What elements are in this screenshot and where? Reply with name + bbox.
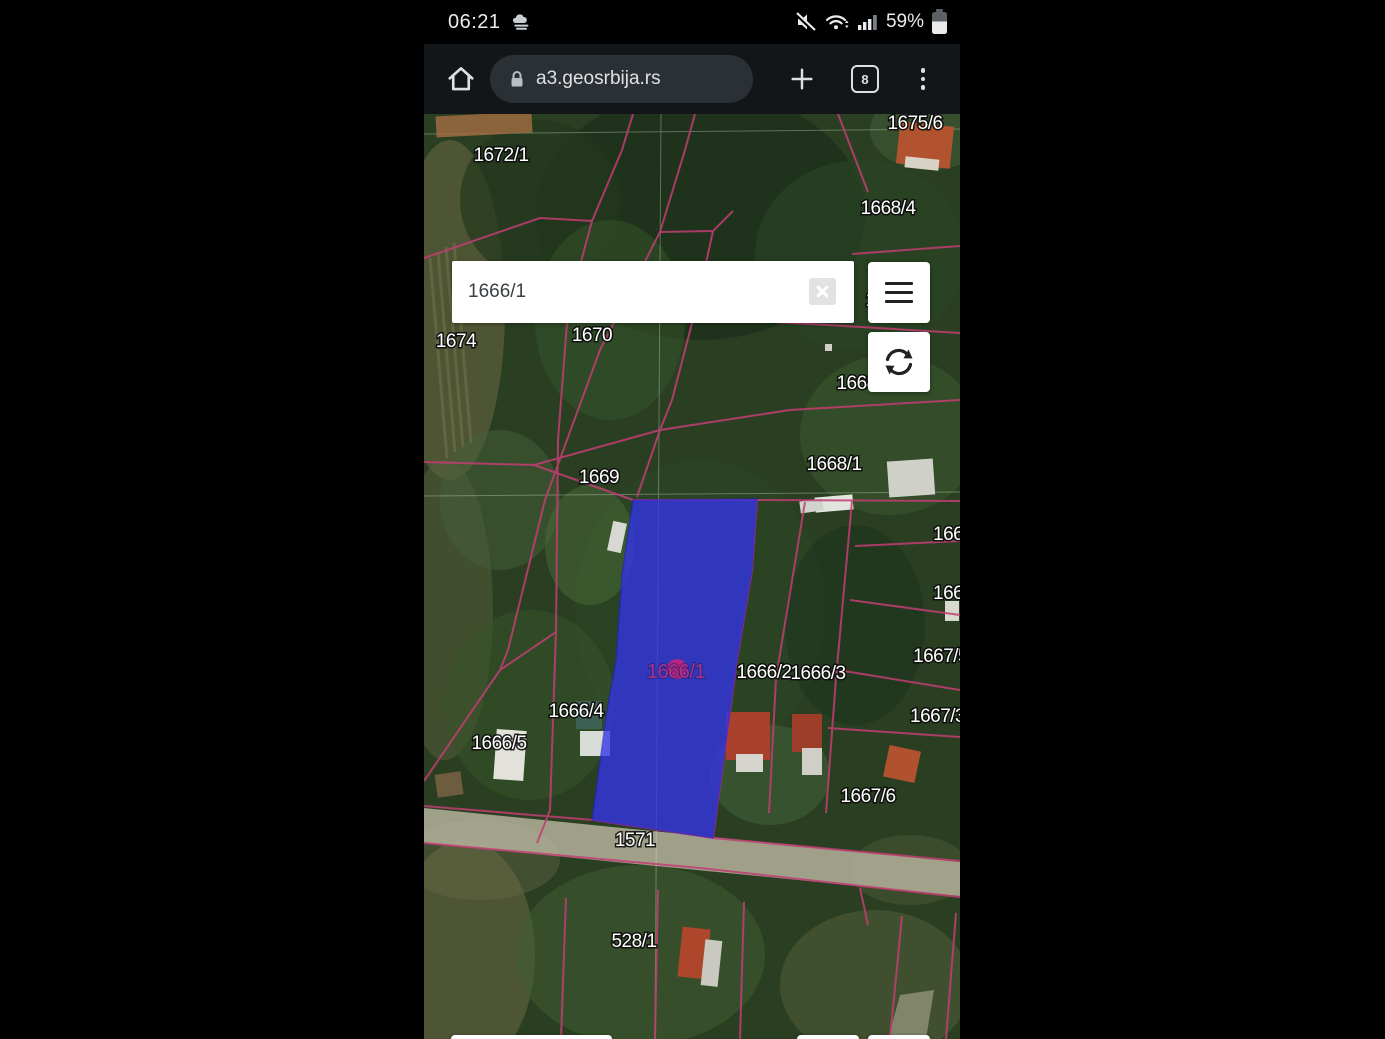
satellite-map[interactable]: 1675/61672/11668/41668/3167416701668/216…	[424, 114, 960, 1039]
clear-search-button[interactable]	[809, 278, 836, 305]
battery-percent: 59%	[886, 11, 924, 33]
phone-screen: 06:21	[424, 0, 960, 1039]
address-bar[interactable]: a3.geosrbija.rs	[490, 55, 753, 103]
signal-icon	[858, 13, 879, 31]
parcel-label-1667-5: 1667/5	[913, 646, 960, 667]
phone-screenshot: 06:21	[0, 0, 1385, 1039]
url-text: a3.geosrbija.rs	[536, 68, 661, 90]
parcel-label-1667: 1667	[933, 583, 960, 604]
parcel-label-1672-1: 1672/1	[473, 145, 528, 166]
parcel-label-1667: 1667	[933, 524, 960, 545]
search-value: 1666/1	[468, 281, 526, 303]
tab-switcher-button[interactable]: 8	[851, 65, 879, 93]
new-tab-button[interactable]	[785, 62, 819, 96]
parcel-label-1666-2: 1666/2	[736, 662, 791, 683]
parcel-label-1666-5: 1666/5	[471, 733, 526, 754]
parcel-label-1667-3: 1667/3	[910, 706, 960, 727]
tab-count: 8	[861, 72, 868, 87]
home-button[interactable]	[444, 62, 478, 96]
plus-icon	[788, 65, 816, 93]
hamburger-icon	[885, 282, 913, 286]
parcel-label-1670: 1670	[572, 325, 612, 346]
parcel-label-1571: 1571	[615, 830, 655, 851]
refresh-icon	[881, 344, 917, 380]
parcel-label-1667-6: 1667/6	[840, 786, 895, 807]
mute-icon	[794, 11, 818, 33]
locate-me-button[interactable]	[797, 1035, 859, 1039]
zoom-in-button[interactable]	[868, 1035, 930, 1039]
home-icon	[446, 64, 476, 94]
parcel-label-1669: 1669	[579, 467, 619, 488]
weather-notification-icon	[511, 13, 533, 31]
clock: 06:21	[448, 11, 501, 34]
parcel-label-528-1: 528/1	[611, 931, 656, 952]
katastar-layer-button[interactable]: KATASTAR	[451, 1035, 612, 1039]
status-icons: 59%	[794, 9, 948, 35]
parcel-label-1668-1: 1668/1	[806, 454, 861, 475]
status-bar: 06:21	[424, 0, 960, 44]
parcel-label-1675-6: 1675/6	[887, 114, 942, 134]
parcel-label-1668-4: 1668/4	[860, 198, 916, 219]
menu-button[interactable]	[868, 262, 930, 323]
browser-menu-button[interactable]	[913, 62, 933, 96]
parcel-label-1666-3: 1666/3	[790, 663, 845, 684]
parcel-label-1666-1: 1666/1	[647, 661, 706, 683]
wifi-icon	[825, 11, 851, 33]
parcel-search-input[interactable]: 1666/1	[452, 261, 854, 323]
battery-icon	[931, 9, 948, 35]
lock-icon	[508, 69, 526, 89]
parcel-label-1666-4: 1666/4	[548, 701, 604, 722]
parcel-label-1674: 1674	[436, 331, 477, 352]
map-viewport[interactable]: 1675/61672/11668/41668/3167416701668/216…	[424, 114, 960, 1039]
browser-toolbar: a3.geosrbija.rs 8	[424, 44, 960, 114]
refresh-button[interactable]	[868, 332, 930, 392]
